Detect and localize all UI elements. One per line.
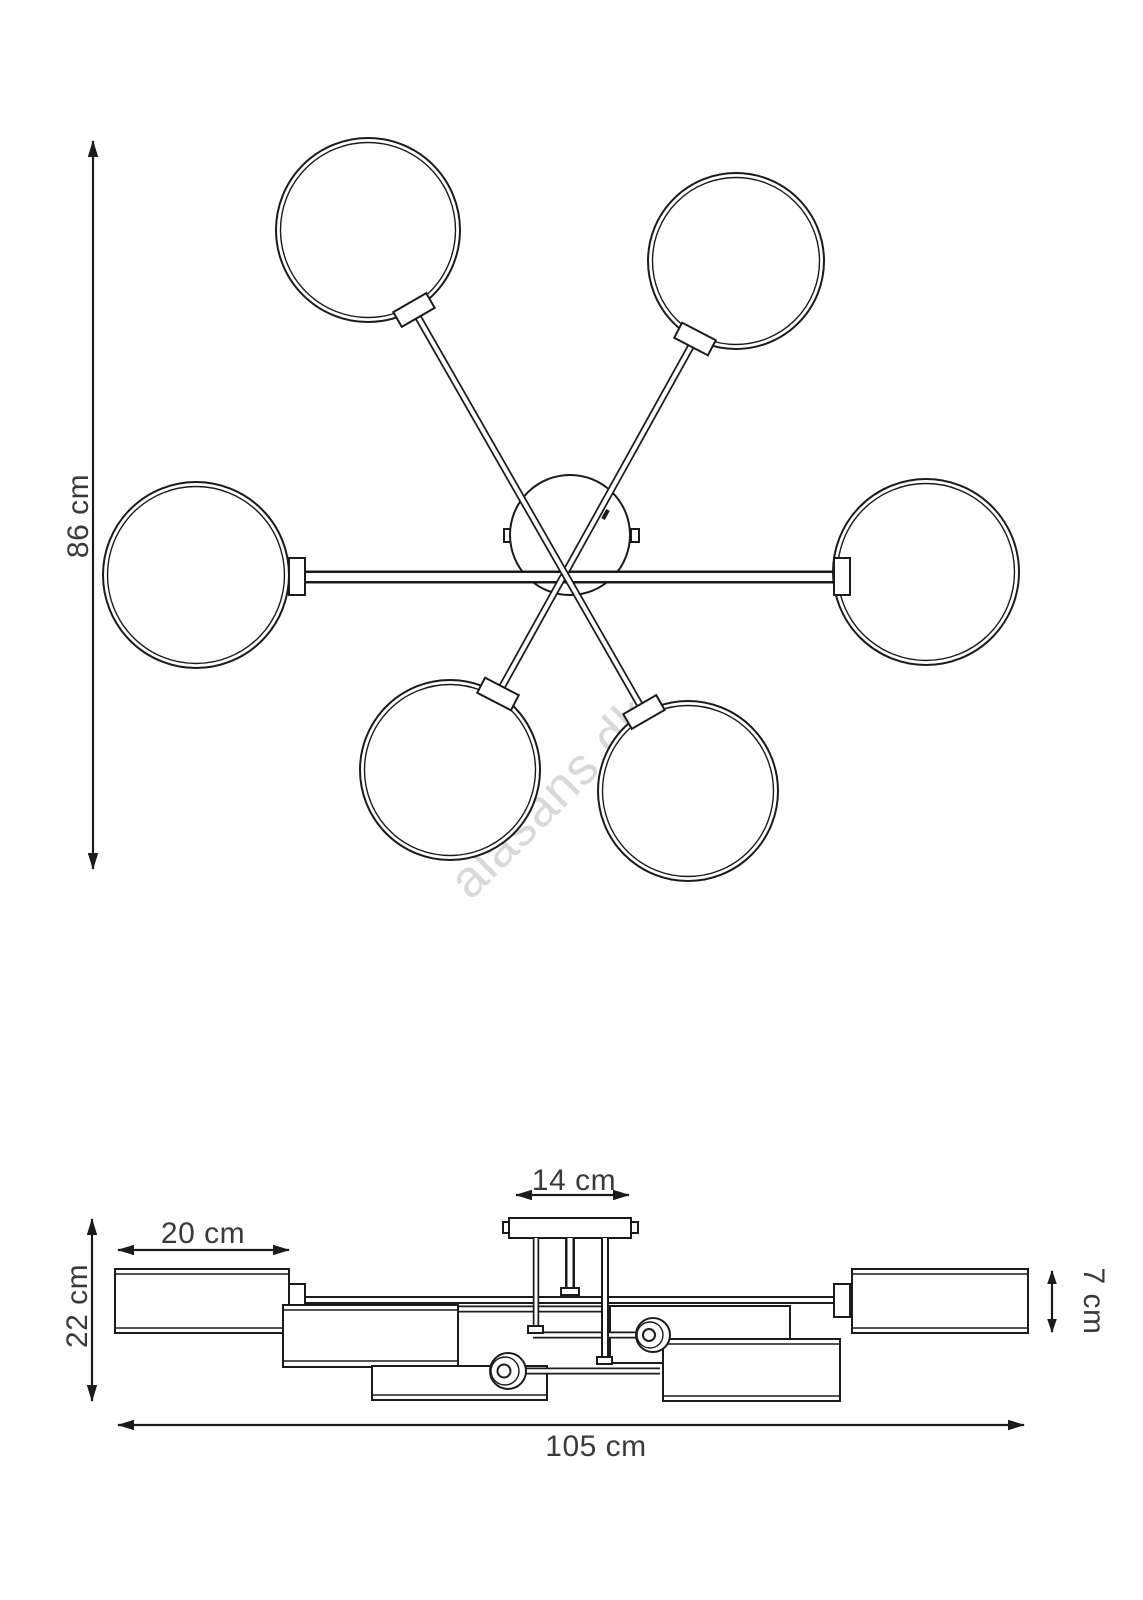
globe-top-left	[276, 138, 460, 322]
globe-right	[833, 479, 1019, 665]
globe-bottom-right	[598, 701, 778, 881]
dimension-canopy-width: 14 cm	[515, 1164, 630, 1200]
shade-body	[283, 1305, 458, 1367]
arrow-up-icon	[88, 140, 98, 157]
arrow-left-icon	[515, 1190, 532, 1200]
socket-hole	[643, 1329, 655, 1341]
socket-end-right	[636, 1318, 670, 1352]
dimension-total-height: 22 cm	[61, 1218, 97, 1402]
arrow-down-icon	[88, 853, 98, 870]
arrow-down-icon	[87, 1385, 97, 1402]
socket-end-left	[490, 1353, 526, 1389]
shade-body	[852, 1269, 1028, 1333]
lamp-shade-left	[115, 1269, 289, 1333]
arrow-right-icon	[1008, 1420, 1025, 1430]
dimension-total-height-label: 22 cm	[61, 1264, 94, 1348]
arrow-up-icon	[1047, 1270, 1057, 1284]
globe-outer	[598, 701, 778, 881]
globe-top-right	[648, 173, 824, 349]
arrow-up-icon	[87, 1218, 97, 1235]
dimension-total-width-label: 105 cm	[545, 1430, 646, 1463]
connector-right	[834, 558, 850, 595]
lamp-shade-bottom-right	[663, 1339, 840, 1401]
lamp-shade-right	[852, 1269, 1028, 1333]
connector-left	[289, 558, 305, 595]
globe-left	[103, 482, 289, 668]
rod-right-foot	[597, 1357, 612, 1364]
globe-outer	[103, 482, 289, 668]
rod-left-foot	[528, 1326, 543, 1333]
arrow-down-icon	[1047, 1319, 1057, 1333]
dimension-height: 86 cm	[62, 140, 98, 870]
canopy-plate	[509, 1218, 631, 1238]
shade-body	[115, 1269, 289, 1333]
dimension-canopy-width-label: 14 cm	[532, 1164, 616, 1197]
lamp-dimension-diagram: 86 cm alasans.dk	[0, 0, 1143, 1600]
lamp-shade-mid-left	[283, 1305, 458, 1367]
arrow-left-icon	[117, 1245, 134, 1255]
canopy-tab-right	[631, 1222, 638, 1233]
dimension-shade-height-label: 7 cm	[1077, 1267, 1110, 1334]
globe-outer	[276, 138, 460, 322]
side-view: 14 cm 20 cm 22 cm 7 cm 105 cm	[61, 1164, 1110, 1463]
dimension-total-width: 105 cm	[117, 1420, 1025, 1463]
globe-outer	[833, 479, 1019, 665]
dimension-shade-width: 20 cm	[117, 1217, 290, 1255]
globe-outer	[648, 173, 824, 349]
ceiling-canopy	[503, 1218, 638, 1238]
hub-tab-right	[631, 529, 639, 542]
rod-middle-foot	[561, 1288, 579, 1295]
top-view: 86 cm alasans.dk	[62, 138, 1019, 910]
arrow-right-icon	[273, 1245, 290, 1255]
arrow-left-icon	[117, 1420, 134, 1430]
technical-drawing-svg: 86 cm alasans.dk	[0, 0, 1143, 1600]
socket-hole	[498, 1365, 511, 1378]
shade-body	[663, 1339, 840, 1401]
side-connector-right	[834, 1284, 850, 1317]
dimension-shade-width-label: 20 cm	[161, 1217, 245, 1250]
dimension-height-label: 86 cm	[62, 474, 95, 558]
dimension-shade-height: 7 cm	[1047, 1267, 1110, 1334]
